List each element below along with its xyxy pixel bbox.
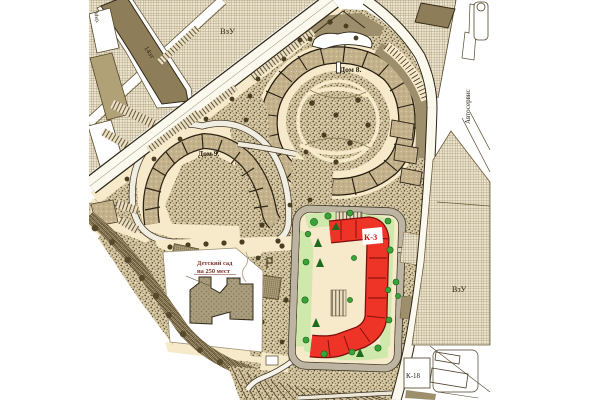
svg-text:ВзУ: ВзУ [452, 285, 466, 294]
svg-text:Детский сад: Детский сад [197, 260, 233, 267]
svg-text:Дом 9.: Дом 9. [198, 149, 220, 158]
svg-text:К-3: К-3 [364, 232, 377, 242]
svg-text:на 250 мест: на 250 мест [197, 268, 231, 275]
svg-text:ВзУ: ВзУ [220, 26, 236, 36]
svg-text:Дом 8.: Дом 8. [340, 65, 362, 74]
svg-text:К-18: К-18 [406, 372, 421, 380]
svg-text:Автосервис: Автосервис [464, 89, 472, 124]
